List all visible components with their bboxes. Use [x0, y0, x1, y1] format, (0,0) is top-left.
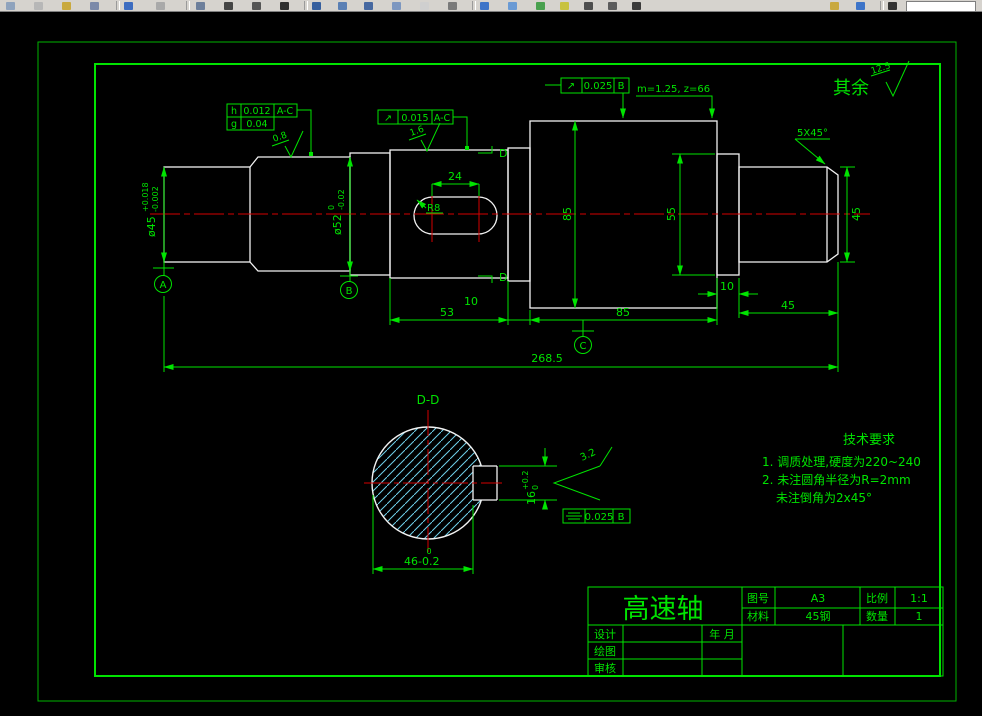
qty-value: 1 [916, 610, 923, 623]
datum-b: B [346, 286, 353, 297]
date-label: 年 月 [709, 627, 735, 641]
toolbar-separator [472, 1, 476, 10]
roughness-icon [554, 466, 600, 500]
svg-text:-0.002: -0.002 [151, 186, 160, 212]
cad-canvas: 其余 12.5 0.8 1.6 3.2 m=1.25, z=66 5X45° h… [0, 12, 982, 716]
svg-text:ø52: ø52 [331, 214, 344, 235]
check-label: 审核 [594, 661, 616, 675]
toolbar-icon[interactable] [312, 2, 321, 10]
dim-46: 46-0.2 [404, 555, 439, 568]
drawing-no-label: 图号 [747, 592, 769, 605]
fcf-symbol: ↗ [567, 81, 575, 92]
material-value: 45钢 [806, 610, 831, 623]
toolbar-separator [304, 1, 308, 10]
dim-10-right: 10 [720, 280, 734, 293]
toolbar-icon[interactable] [364, 2, 373, 10]
dim-keyway-radius: R8 [427, 203, 440, 214]
dim-45-right: 45 [781, 299, 795, 312]
tech-line: 2. 未注圆角半径为R=2mm [762, 472, 911, 487]
toolbar-icon[interactable] [830, 2, 839, 10]
tech-line: 未注倒角为2x45° [776, 490, 872, 505]
toolbar-separator [116, 1, 120, 10]
fcf-tolerance: 0.025 [585, 512, 614, 523]
toolbar-icon[interactable] [508, 2, 517, 10]
fcf-symbol: h [231, 106, 237, 117]
fcf-datum: A-C [277, 106, 294, 117]
toolbar-icon[interactable] [584, 2, 593, 10]
svg-text:0: 0 [327, 205, 336, 210]
dim-10-left: 10 [464, 295, 478, 308]
toolbar-icon[interactable] [888, 2, 897, 10]
fcf-datum: B [618, 512, 625, 523]
dim-dia55: 55 [665, 207, 678, 221]
qty-label: 数量 [866, 610, 888, 623]
finish-value: 0.8 [272, 130, 289, 144]
fcf-datum: B [618, 81, 625, 92]
toolbar-icon[interactable] [224, 2, 233, 10]
section-label: D-D [417, 393, 440, 407]
material-label: 材料 [747, 609, 769, 623]
fcf-tolerance: 0.015 [401, 113, 428, 124]
toolbar-separator [186, 1, 190, 10]
svg-text:0: 0 [531, 485, 540, 490]
drawing-no-value: A3 [811, 592, 826, 605]
svg-text:+0.2: +0.2 [521, 471, 530, 490]
dimension-lines [164, 85, 855, 574]
toolbar-icon[interactable] [196, 2, 205, 10]
dim-dia85: 85 [561, 207, 574, 221]
draw-label: 绘图 [594, 644, 616, 658]
dim-dia52: ø52 0 -0.02 [327, 189, 346, 235]
dim-53: 53 [440, 306, 454, 319]
toolbar-icon[interactable] [124, 2, 133, 10]
svg-text:16: 16 [525, 491, 538, 505]
datum-symbols [153, 262, 594, 354]
roughness-icon [421, 123, 440, 151]
toolbar [0, 0, 982, 12]
toolbar-icon[interactable] [632, 2, 641, 10]
centerlines [150, 190, 870, 552]
toolbar-icon[interactable] [392, 2, 401, 10]
scale-label: 比例 [866, 591, 888, 605]
toolbar-icon[interactable] [480, 2, 489, 10]
toolbar-icon[interactable] [156, 2, 165, 10]
design-label: 设计 [594, 628, 616, 641]
toolbar-icon[interactable] [62, 2, 71, 10]
toolbar-icon[interactable] [90, 2, 99, 10]
cut-mark-d-top: D [499, 147, 507, 160]
title-block: 高速轴 图号 A3 比例 1:1 材料 45钢 数量 1 设计 年 月 绘图 审… [588, 587, 943, 676]
fcf-symbol: g [231, 119, 237, 130]
fcf-datum: A-C [434, 113, 451, 124]
symmetry-icon [566, 513, 582, 519]
toolbar-icon[interactable] [252, 2, 261, 10]
tech-title: 技术要求 [843, 433, 895, 448]
fcf-tolerance: 0.04 [246, 119, 267, 130]
fcf-tolerance: 0.012 [243, 106, 270, 117]
toolbar-icon[interactable] [536, 2, 545, 10]
finish-value: 3.2 [579, 447, 598, 464]
toolbar-icon[interactable] [448, 2, 457, 10]
dim-keyway-length: 24 [448, 170, 462, 183]
toolbar-separator [880, 1, 884, 10]
svg-text:-0.02: -0.02 [337, 189, 346, 210]
toolbar-icon[interactable] [34, 2, 43, 10]
toolbar-icon[interactable] [560, 2, 569, 10]
roughness-icon [285, 131, 303, 157]
dim-85: 85 [616, 306, 630, 319]
dim-dia45-right: 45 [850, 207, 863, 221]
toolbar-icon[interactable] [280, 2, 289, 10]
part-name: 高速轴 [623, 594, 704, 625]
cut-mark-d-bottom: D [499, 271, 507, 284]
toolbar-icon[interactable] [338, 2, 347, 10]
annotations: 其余 12.5 0.8 1.6 3.2 m=1.25, z=66 5X45° h… [141, 61, 921, 568]
svg-text:ø45: ø45 [145, 216, 158, 237]
toolbar-icon[interactable] [608, 2, 617, 10]
surface-finish-symbols [272, 61, 909, 500]
chamfer-note: 5X45° [797, 128, 828, 139]
svg-text:+0.018: +0.018 [141, 182, 150, 212]
dim-total-length: 268.5 [531, 352, 563, 365]
surface-note-prefix: 其余 [833, 78, 869, 99]
toolbar-icon[interactable] [420, 2, 429, 10]
tech-line: 1. 调质处理,硬度为220~240 [762, 454, 921, 469]
fcf-symbol: ↗ [384, 113, 392, 124]
dim-dia45-left: ø45 +0.018 -0.002 [141, 182, 160, 237]
fcf-tolerance: 0.025 [584, 81, 613, 92]
datum-a: A [160, 280, 167, 291]
finish-value: 1.6 [409, 124, 426, 138]
toolbar-icon[interactable] [6, 2, 15, 10]
datum-c: C [580, 341, 587, 352]
scale-value: 1:1 [910, 592, 928, 605]
toolbar-field[interactable] [906, 1, 976, 12]
gear-note: m=1.25, z=66 [637, 84, 710, 95]
toolbar-icon[interactable] [856, 2, 865, 10]
